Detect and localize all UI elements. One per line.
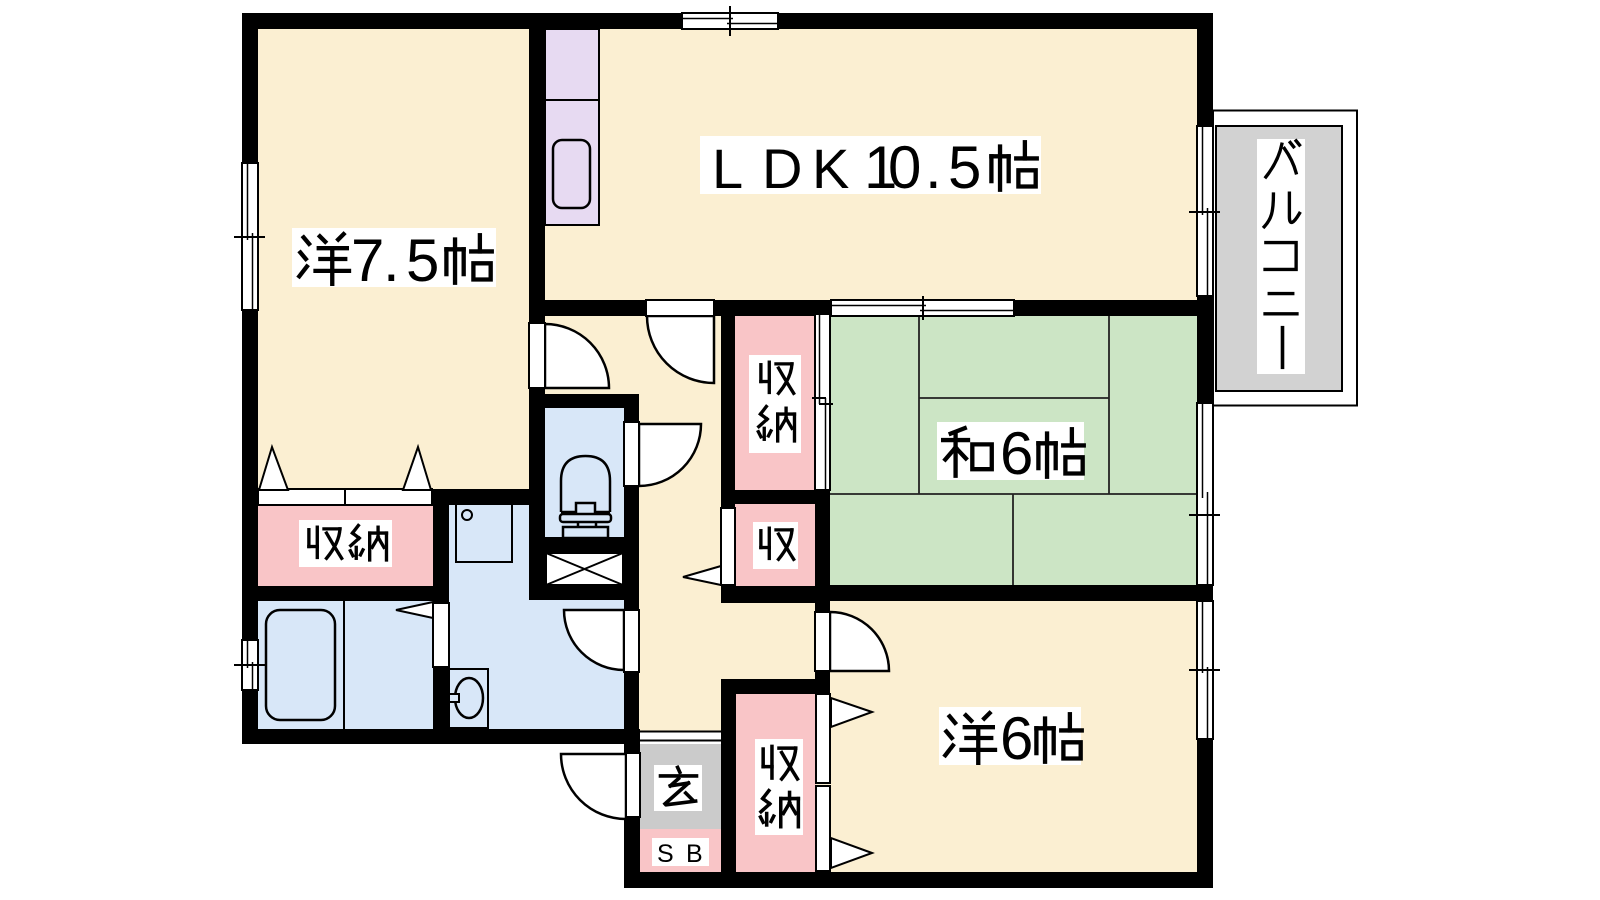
- svg-text:7: 7: [351, 227, 384, 294]
- svg-text:L: L: [712, 137, 743, 200]
- svg-text:.: .: [383, 227, 400, 294]
- svg-text:0: 0: [888, 134, 921, 201]
- svg-text:6: 6: [1000, 705, 1033, 772]
- svg-text:5: 5: [406, 227, 439, 294]
- svg-text:.: .: [925, 134, 942, 201]
- svg-text:D: D: [762, 137, 802, 200]
- svg-text:6: 6: [1000, 420, 1033, 487]
- svg-text:B: B: [686, 840, 703, 868]
- svg-text:5: 5: [948, 134, 981, 201]
- svg-text:K: K: [812, 137, 849, 200]
- svg-text:S: S: [657, 840, 674, 868]
